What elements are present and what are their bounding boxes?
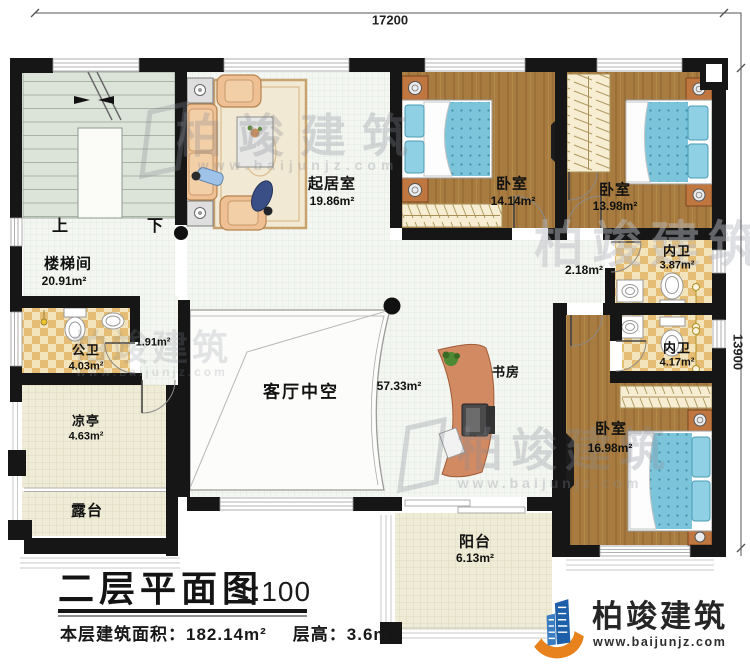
watermark-url: www.baijunjz.com [197,157,399,173]
watermark-url: www.baijunjz.com [457,475,643,491]
title-underline [58,609,307,613]
floor-area-label: 本层建筑面积： [60,625,186,644]
floor-height-label: 层高： [293,625,347,644]
floor-height-value: 3.6m [347,625,390,644]
watermark-text: 柏竣建筑 [176,110,424,162]
floor-area-value: 182.14m² [186,625,267,644]
column-dot [384,298,401,315]
watermark-text: 柏竣建筑 [534,217,750,273]
company-logo-name: 柏竣建筑 [592,601,728,632]
title-subtext: 本层建筑面积：182.14m²层高：3.6m [60,626,390,645]
page-title: 二层平面图 [58,571,263,607]
watermark-url: www.baijunjz.com [75,365,228,379]
corner-column-inset [706,64,722,82]
column-dot [174,226,188,240]
title-underline-thin [58,615,307,617]
drawing-scale: 1:100 [236,578,311,606]
staircase [23,72,175,218]
floorplan-page: 柏竣建筑 www.baijunjz.com 柏竣建筑 柏竣建筑 www.baij… [0,0,750,669]
watermark-text: 柏竣建筑 [72,327,232,368]
watermark-text: 柏竣建筑 [457,424,673,476]
company-logo-icon [528,595,590,659]
company-logo-website: www.baijunjz.com [593,636,726,649]
